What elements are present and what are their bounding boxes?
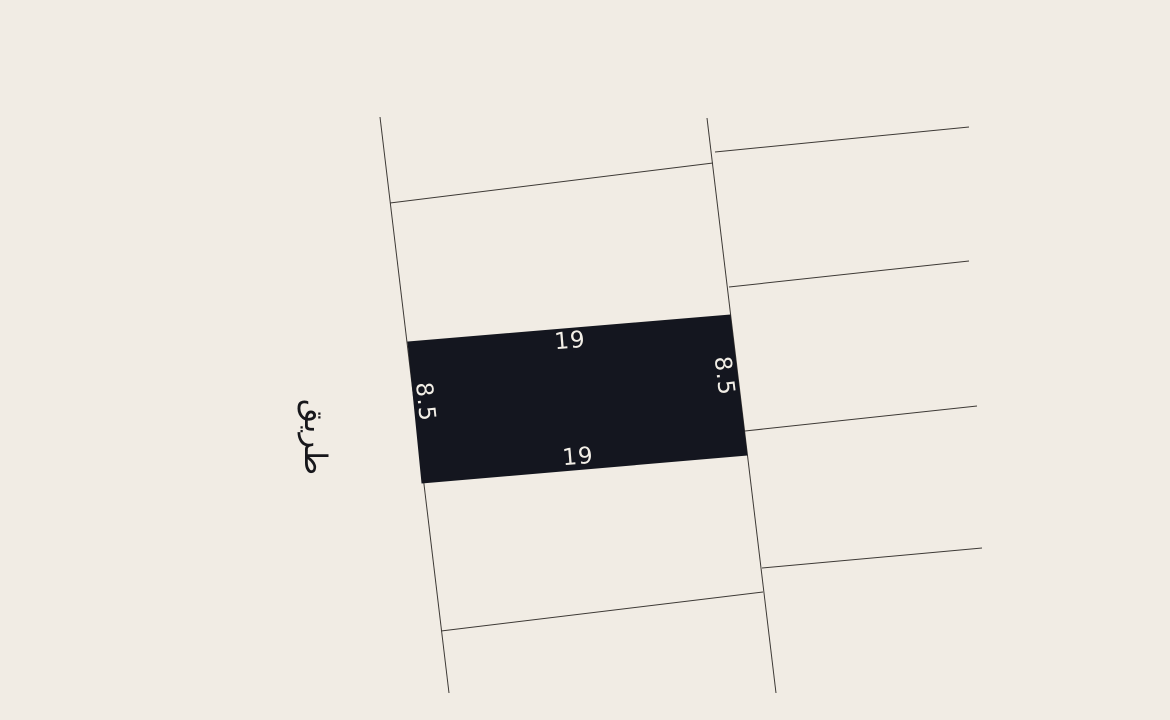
cadastral-map: 19 19 8.5 8.5 طريق <box>0 0 1170 720</box>
boundary-line <box>762 548 982 568</box>
boundary-line <box>745 406 977 431</box>
boundary-line <box>390 163 713 203</box>
dimension-label-top: 19 <box>553 327 586 356</box>
boundary-line <box>441 592 763 631</box>
road-label: طريق <box>297 399 333 475</box>
boundary-line <box>729 261 969 287</box>
parcel-map-svg <box>0 0 1170 720</box>
dimension-label-left: 8.5 <box>410 381 440 423</box>
dimension-label-right: 8.5 <box>709 355 740 397</box>
dimension-label-bottom: 19 <box>561 443 594 472</box>
boundary-line <box>715 127 969 152</box>
